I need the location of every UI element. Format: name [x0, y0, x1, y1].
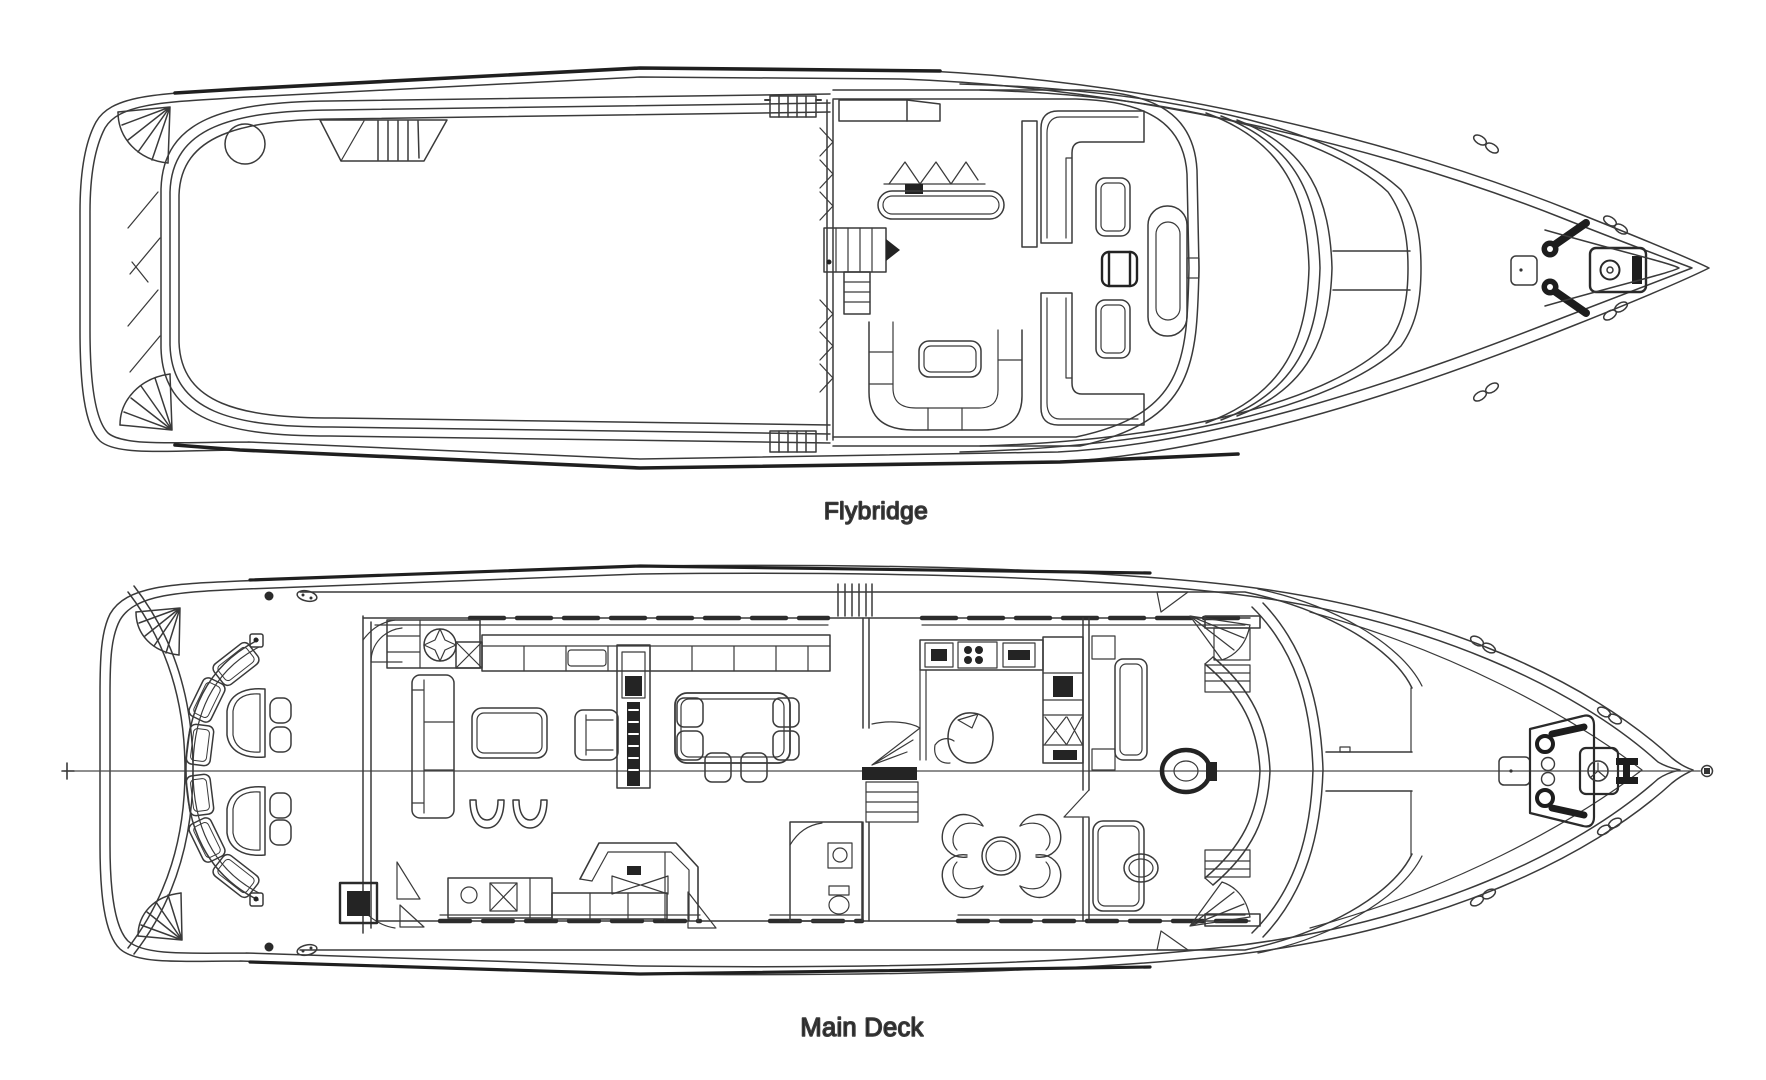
svg-text:Main Deck: Main Deck — [800, 1014, 923, 1042]
svg-text:Flybridge: Flybridge — [824, 498, 928, 525]
